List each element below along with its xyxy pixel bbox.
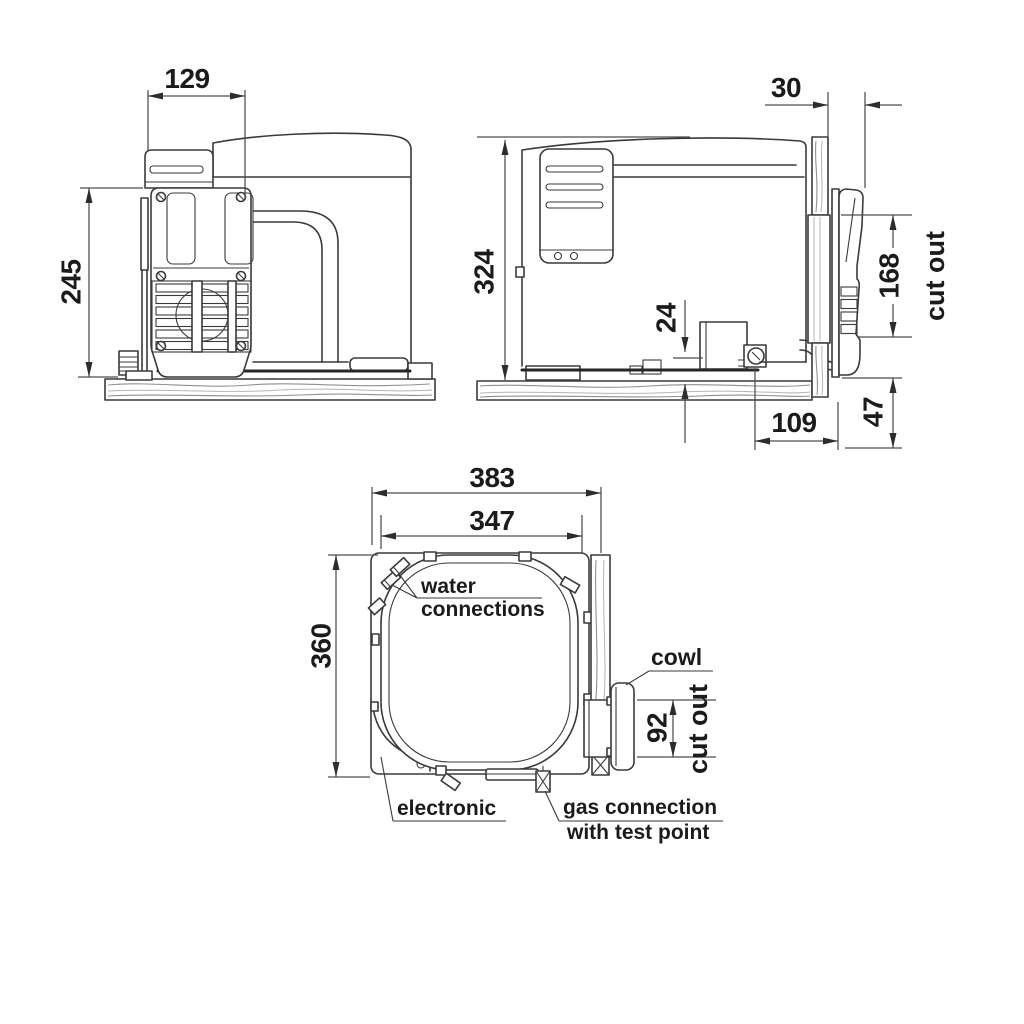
dim-92-label: 92: [642, 713, 673, 743]
floor-panel: [105, 379, 435, 400]
dim-47-label: 47: [858, 397, 889, 427]
mounting-flange-cap: [145, 150, 213, 188]
dimension-245: 245: [56, 188, 144, 377]
cutout-label-section: cut out: [920, 231, 950, 321]
dim-383-label: 383: [469, 462, 514, 493]
dim-24-label: 24: [651, 302, 682, 333]
dim-109-label: 109: [771, 407, 816, 438]
dimension-92-cutout: 92 cut out: [637, 684, 716, 774]
water-label-line2: connections: [421, 598, 545, 621]
dim-245-label: 245: [56, 259, 87, 304]
cutout-label-top: cut out: [683, 684, 713, 774]
wall-cutout-duct: [808, 215, 830, 343]
drain-pipe: [119, 198, 152, 380]
dim-360-label: 360: [306, 623, 337, 668]
dimension-47: 47: [842, 378, 902, 448]
cowl-label: cowl: [626, 644, 713, 685]
dimension-347: 347: [381, 505, 582, 553]
section-view-wall: 324 30 24 168 cut out: [469, 72, 951, 450]
vehicle-wall: [808, 137, 830, 397]
dim-129-label: 129: [164, 63, 209, 94]
front-foot: [526, 366, 580, 380]
cowl-side-view: [832, 189, 863, 377]
dim-30-label: 30: [771, 72, 801, 103]
heater-body-section: [516, 138, 850, 380]
technical-drawing-canvas: 129 245: [0, 0, 1024, 1024]
floor-panel-2: [477, 381, 812, 400]
dim-324-label: 324: [469, 248, 500, 294]
dim-347-label: 347: [469, 505, 514, 536]
water-label-line1: water: [420, 575, 476, 598]
drawing-svg: 129 245: [0, 0, 1024, 1024]
side-view-grille: 129 245: [56, 63, 436, 400]
rear-foot: [408, 363, 432, 379]
top-view: 383 347 360 92 cut out: [306, 462, 724, 844]
electronic-label-text: electronic: [397, 797, 497, 820]
dimension-360: 360: [306, 555, 379, 777]
dim-168-label: 168: [874, 253, 905, 298]
cowl-label-text: cowl: [651, 644, 702, 670]
gas-connection-label: gas connection with test point: [545, 791, 723, 844]
gas-label-line1: gas connection: [563, 796, 717, 819]
drain-valve: [700, 322, 747, 369]
electronics-cover-panel: [540, 149, 613, 263]
gas-label-line2: with test point: [566, 821, 709, 844]
tank-outline: [381, 555, 578, 770]
combustion-air-housing: [151, 188, 253, 377]
